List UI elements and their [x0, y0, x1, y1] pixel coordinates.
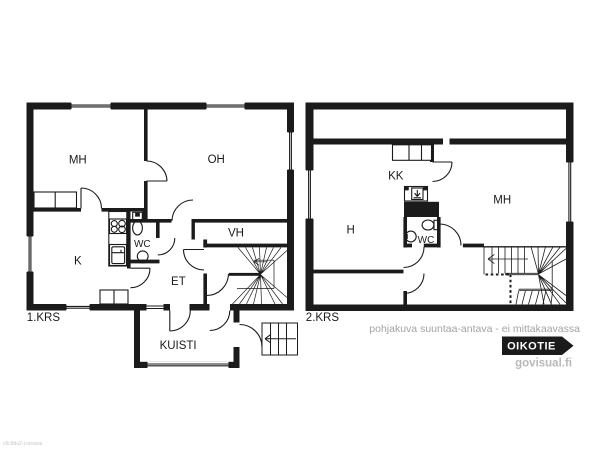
svg-text:H: H: [346, 225, 354, 237]
svg-text:c6c8du2-j-rsrsssa: c6c8du2-j-rsrsssa: [3, 441, 43, 447]
svg-text:ET: ET: [171, 276, 186, 288]
svg-text:VH: VH: [228, 228, 244, 240]
svg-text:K: K: [74, 255, 82, 267]
svg-text:OH: OH: [208, 154, 225, 166]
svg-text:OIKOTIE: OIKOTIE: [507, 341, 556, 353]
svg-text:pohjakuva suuntaa-antava - ei: pohjakuva suuntaa-antava - ei mittakaava…: [369, 323, 580, 335]
svg-text:MH: MH: [493, 194, 511, 206]
svg-text:1.KRS: 1.KRS: [27, 312, 61, 324]
svg-text:WC: WC: [418, 235, 435, 246]
svg-text:MH: MH: [69, 155, 87, 167]
svg-text:WC: WC: [134, 239, 151, 250]
svg-text:govisual.fi: govisual.fi: [515, 357, 572, 369]
svg-text:2.KRS: 2.KRS: [306, 312, 340, 324]
svg-text:KUISTI: KUISTI: [160, 340, 197, 352]
svg-text:KK: KK: [388, 170, 404, 182]
